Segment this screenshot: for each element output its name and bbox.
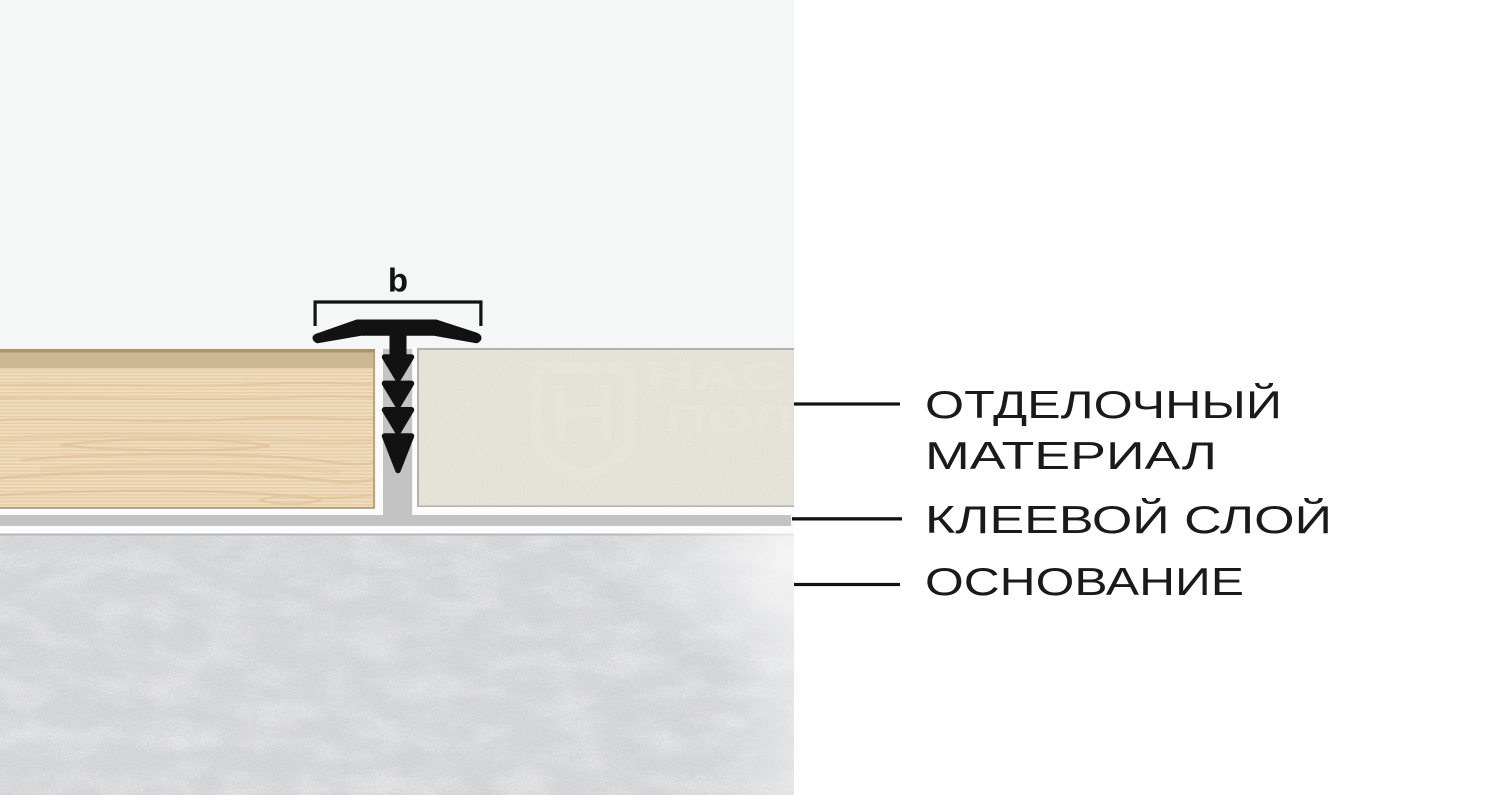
svg-text:НАС: НАС [646,355,788,398]
svg-text:КЛЕЕВОЙ СЛОЙ: КЛЕЕВОЙ СЛОЙ [925,497,1332,542]
svg-text:ОСНОВАНИЕ: ОСНОВАНИЕ [925,561,1244,604]
svg-text:ОТДЕЛОЧНЫЙ: ОТДЕЛОЧНЫЙ [925,382,1282,427]
svg-text:b: b [388,262,408,299]
svg-text:МАТЕРИАЛ: МАТЕРИАЛ [925,435,1217,478]
svg-text:ПОЛ: ПОЛ [665,398,793,441]
